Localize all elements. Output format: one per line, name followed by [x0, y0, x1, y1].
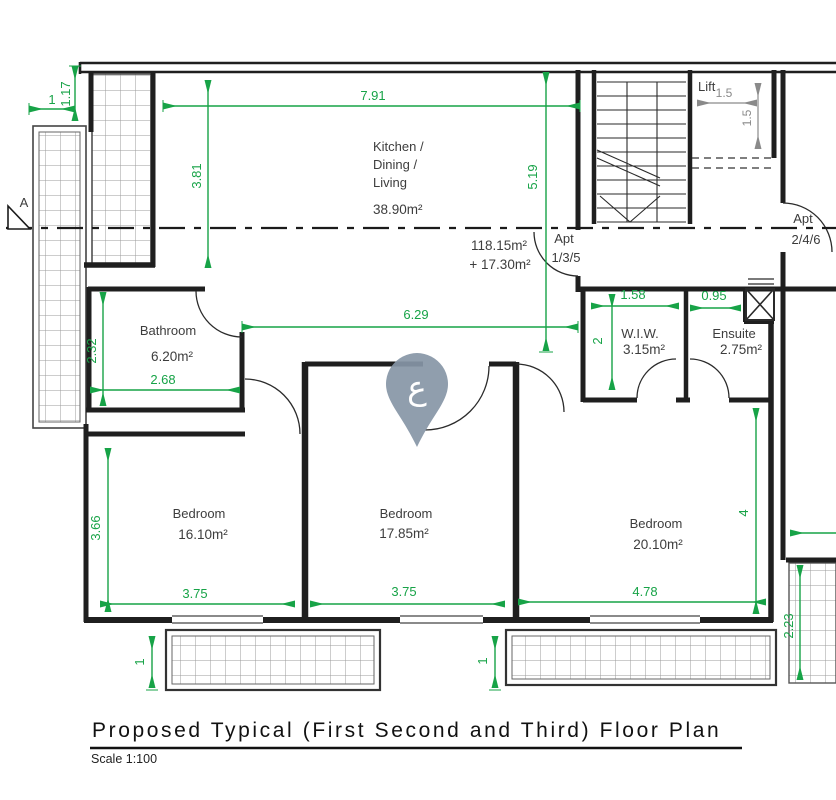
lift-height-dim: 1.5 — [740, 109, 754, 126]
vent-shaft-icon — [746, 279, 774, 320]
dim-kitchen-height-left: 3.81 — [189, 163, 204, 188]
dim-wiw-height: 2 — [590, 337, 605, 344]
door-arc-bathroom — [196, 291, 242, 337]
stair-break-line — [597, 150, 660, 186]
dim-ensuite-width: 0.95 — [701, 288, 726, 303]
terrace-topleft — [92, 74, 152, 265]
dim-bedroom1-height: 3.66 — [88, 515, 103, 540]
wiw-area: 3.15m² — [623, 342, 666, 357]
dim-balcony-right-depth: 1 — [475, 657, 490, 664]
dim-hallway-width: 6.29 — [403, 307, 428, 322]
balcony-left-inner — [39, 132, 80, 422]
balcony-bottom-right-inner — [512, 636, 770, 679]
drawing-scale: Scale 1:100 — [91, 752, 157, 766]
door-arc-ensuite — [690, 359, 729, 398]
floor-plan-canvas: 1.5 1.5 A — [0, 0, 836, 800]
watermark-pin-icon: ع — [386, 353, 448, 447]
dim-bedroom2-width: 3.75 — [391, 584, 416, 599]
dim-balcony-left-depth: 1 — [132, 658, 147, 665]
dim-bedroom3-width: 4.78 — [632, 584, 657, 599]
floor-plan-page: 1.5 1.5 A — [0, 0, 836, 800]
dim-balcony-side-height: 2.23 — [781, 613, 796, 638]
ensuite-area: 2.75m² — [720, 342, 763, 357]
dim-bathroom-height: 2.32 — [84, 338, 99, 363]
title-block: Proposed Typical (First Second and Third… — [90, 719, 742, 766]
bedroom2-label: Bedroom — [380, 506, 433, 521]
dim-top-offset-h: 1 — [48, 92, 55, 107]
bathroom-label: Bathroom — [140, 323, 196, 338]
dim-bedroom3-height: 4 — [736, 509, 751, 516]
apt246-label-2: 2/4/6 — [792, 232, 821, 247]
door-arc-bedroom3 — [516, 364, 564, 412]
drawing-title: Proposed Typical (First Second and Third… — [92, 719, 721, 742]
lift-label: Lift — [698, 79, 716, 94]
kitchen-area: 38.90m² — [373, 202, 423, 217]
apt135-label-2: 1/3/5 — [552, 250, 581, 265]
kitchen-label-3: Living — [373, 175, 407, 190]
apartment-total-area: 118.15m² — [471, 238, 528, 253]
apt135-label-1: Apt — [554, 231, 574, 246]
lift-door-dashed — [692, 158, 772, 168]
apartment-extra-area: + 17.30m² — [469, 257, 531, 272]
kitchen-label-2: Dining / — [373, 157, 417, 172]
bedroom3-label: Bedroom — [630, 516, 683, 531]
bedroom1-label: Bedroom — [173, 506, 226, 521]
lift-shaft: 1.5 1.5 — [692, 84, 772, 168]
lift-width-dim: 1.5 — [716, 86, 733, 100]
bedroom3-area: 20.10m² — [633, 537, 683, 552]
dim-bedroom1-width: 3.75 — [182, 586, 207, 601]
section-marker-label: A — [20, 195, 29, 210]
balcony-side-right — [789, 563, 836, 683]
dim-bathroom-width: 2.68 — [150, 372, 175, 387]
apt246-label-1: Apt — [793, 211, 813, 226]
ensuite-label: Ensuite — [712, 326, 755, 341]
windows — [172, 613, 700, 627]
watermark-letter: ع — [407, 368, 427, 407]
door-arc-wiw — [637, 359, 676, 398]
bedroom1-area: 16.10m² — [178, 527, 228, 542]
staircase — [597, 82, 686, 222]
wiw-label: W.I.W. — [621, 326, 659, 341]
door-arc-bedroom1 — [245, 379, 300, 434]
dim-wiw-width: 1.58 — [620, 287, 645, 302]
bedroom2-area: 17.85m² — [379, 526, 429, 541]
dim-kitchen-height-right: 5.19 — [525, 164, 540, 189]
balcony-bottom-left-inner — [172, 636, 374, 684]
kitchen-label-1: Kitchen / — [373, 139, 424, 154]
stair-direction-chevron — [600, 196, 660, 222]
room-labels: Kitchen / Dining / Living 38.90m² Bathro… — [140, 79, 821, 552]
dim-kitchen-width: 7.91 — [360, 88, 385, 103]
bathroom-area: 6.20m² — [151, 349, 194, 364]
dim-top-offset-v: 1.17 — [58, 81, 73, 106]
